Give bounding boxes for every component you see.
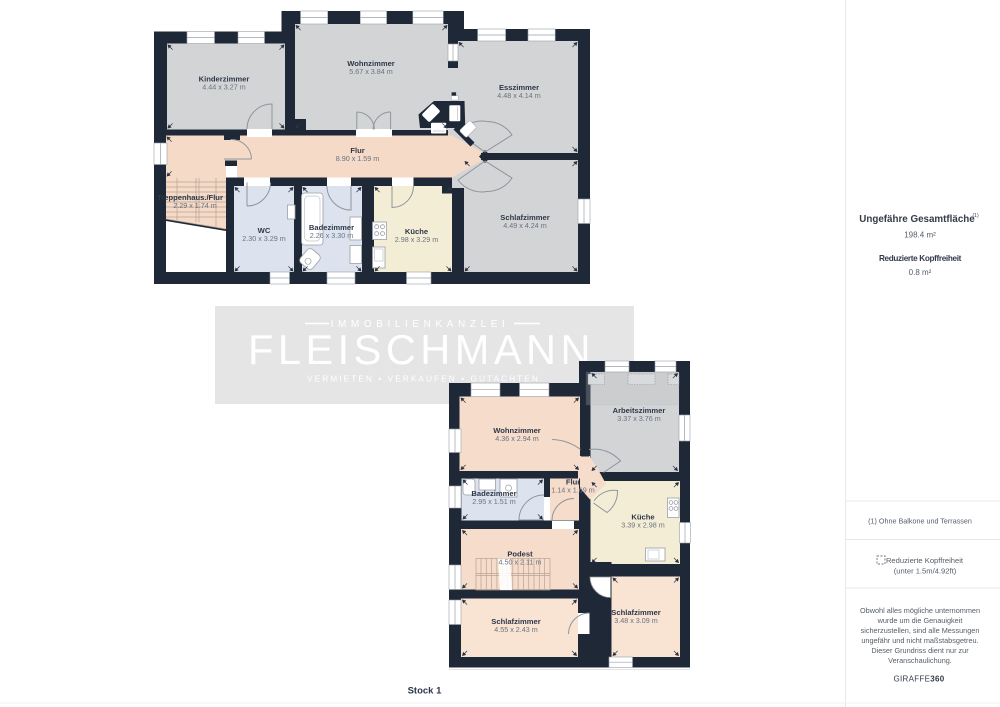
svg-text:GIRAFFE360: GIRAFFE360 xyxy=(893,674,944,683)
svg-text:0.8 m²: 0.8 m² xyxy=(909,268,932,277)
svg-text:4.44 x 3.27 m: 4.44 x 3.27 m xyxy=(202,83,246,92)
svg-text:Obwohl alles mögliche unternom: Obwohl alles mögliche unternommen xyxy=(860,606,980,615)
svg-text:2.95 x 1.51 m: 2.95 x 1.51 m xyxy=(472,497,516,506)
svg-text:4.36 x 2.94 m: 4.36 x 2.94 m xyxy=(495,434,539,443)
svg-text:(1): (1) xyxy=(973,213,979,219)
svg-text:4.48 x 4.14 m: 4.48 x 4.14 m xyxy=(497,91,541,100)
svg-text:1.14 x 1.69 m: 1.14 x 1.69 m xyxy=(551,486,595,495)
svg-text:3.37 x 3.76 m: 3.37 x 3.76 m xyxy=(617,414,661,423)
svg-text:4.50 x 2.11 m: 4.50 x 2.11 m xyxy=(498,558,541,567)
svg-text:Reduzierte Kopffreiheit: Reduzierte Kopffreiheit xyxy=(886,556,964,565)
svg-text:wurde um die Genauigkeit: wurde um die Genauigkeit xyxy=(877,616,963,625)
svg-text:4.49 x 4.24 m: 4.49 x 4.24 m xyxy=(503,221,547,230)
svg-text:(1) Ohne Balkone und Terrassen: (1) Ohne Balkone und Terrassen xyxy=(868,517,972,526)
svg-text:FLEISCHMANN: FLEISCHMANN xyxy=(248,326,595,373)
svg-text:Dieser Grundriss dient nur zur: Dieser Grundriss dient nur zur xyxy=(871,646,969,655)
svg-text:Stock 1: Stock 1 xyxy=(408,686,443,697)
svg-text:198.4 m²: 198.4 m² xyxy=(904,231,936,240)
svg-text:2.30 x 3.29 m: 2.30 x 3.29 m xyxy=(242,234,286,243)
svg-text:8.90 x 1.59 m: 8.90 x 1.59 m xyxy=(336,154,380,163)
svg-text:Reduzierte Kopffreiheit: Reduzierte Kopffreiheit xyxy=(879,254,962,263)
svg-text:ungefähr und nicht maßstabsget: ungefähr und nicht maßstabsgetreu. xyxy=(861,636,978,645)
svg-text:Ungefähre Gesamtfläche: Ungefähre Gesamtfläche xyxy=(859,214,975,225)
svg-text:sicherzustellen, sind alle Mes: sicherzustellen, sind alle Messungen xyxy=(861,626,980,635)
svg-text:5.67 x 3.84 m: 5.67 x 3.84 m xyxy=(349,67,393,76)
svg-text:4.55 x 2.43 m: 4.55 x 2.43 m xyxy=(494,625,538,634)
svg-text:2.29 x 1.74 m: 2.29 x 1.74 m xyxy=(173,201,217,210)
svg-text:2.98 x 3.29 m: 2.98 x 3.29 m xyxy=(395,235,439,244)
svg-text:VERMIETEN • VERKAUFEN • GUTACH: VERMIETEN • VERKAUFEN • GUTACHTEN xyxy=(307,374,540,384)
svg-text:3.48 x 3.09 m: 3.48 x 3.09 m xyxy=(614,616,658,625)
svg-text:Veranschaulichung.: Veranschaulichung. xyxy=(888,656,952,665)
svg-text:(unter 1.5m/4.92ft): (unter 1.5m/4.92ft) xyxy=(894,567,957,576)
svg-text:2.26 x 3.30 m: 2.26 x 3.30 m xyxy=(310,231,354,240)
svg-text:3.39 x 2.98 m: 3.39 x 2.98 m xyxy=(621,521,665,530)
